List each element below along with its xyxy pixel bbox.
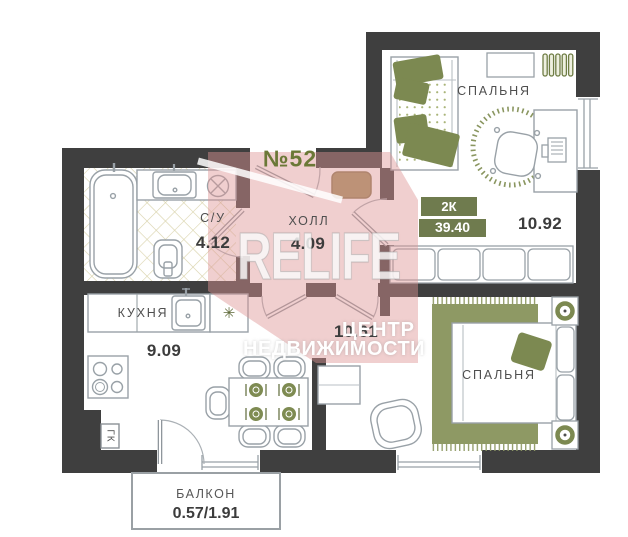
stove (88, 356, 128, 398)
room-label-kitchen: КУХНЯ (118, 306, 169, 320)
dresser (318, 366, 360, 404)
room-label-balcony: БАЛКОН (176, 487, 236, 501)
watermark-line1: ЦЕНТР (243, 320, 415, 340)
room-area-balcony: 0.57/1.91 (173, 505, 240, 523)
apartment-number: №52 (263, 146, 317, 173)
room-area-bathroom: 4.12 (196, 233, 230, 253)
room-label-bathroom: С/У (200, 211, 226, 225)
office-chair (491, 128, 541, 179)
radiator-icon (543, 54, 573, 76)
window-bedroom-bottom (396, 450, 482, 473)
window-kitchen (200, 450, 260, 473)
bed-top (391, 54, 460, 170)
floor-plan: №52 С/У 4.12 ХОЛЛ 4.09 СПАЛЬНЯ 10.92 КУХ… (0, 0, 628, 537)
watermark-line2: НЕДВИЖИМОСТИ (243, 340, 415, 359)
armchair (368, 397, 425, 452)
fridge-symbol-icon: ✳ (223, 304, 236, 322)
toilet (154, 240, 182, 278)
nightstand-bottom (552, 421, 578, 449)
watermark-subtitle: ЦЕНТР НЕДВИЖИМОСТИ (243, 320, 415, 359)
wardrobe-niche-label: ГК (105, 429, 116, 442)
window-bedroom-top (576, 97, 600, 170)
watermark-brand: RELIFE (237, 221, 400, 295)
rooms-type-badge: 2К (421, 197, 477, 216)
room-area-bedroom-top: 10.92 (518, 214, 562, 234)
shelf (487, 53, 534, 77)
total-area-badge: 39.40 (418, 218, 487, 238)
dining-table (229, 378, 308, 426)
room-label-bedroom-top: СПАЛЬНЯ (457, 84, 531, 98)
room-area-kitchen: 9.09 (147, 341, 181, 361)
nightstand-top (552, 297, 578, 325)
bathtub (90, 163, 137, 278)
room-label-bedroom-bottom: СПАЛЬНЯ (462, 368, 536, 382)
door-balcony (160, 420, 204, 464)
